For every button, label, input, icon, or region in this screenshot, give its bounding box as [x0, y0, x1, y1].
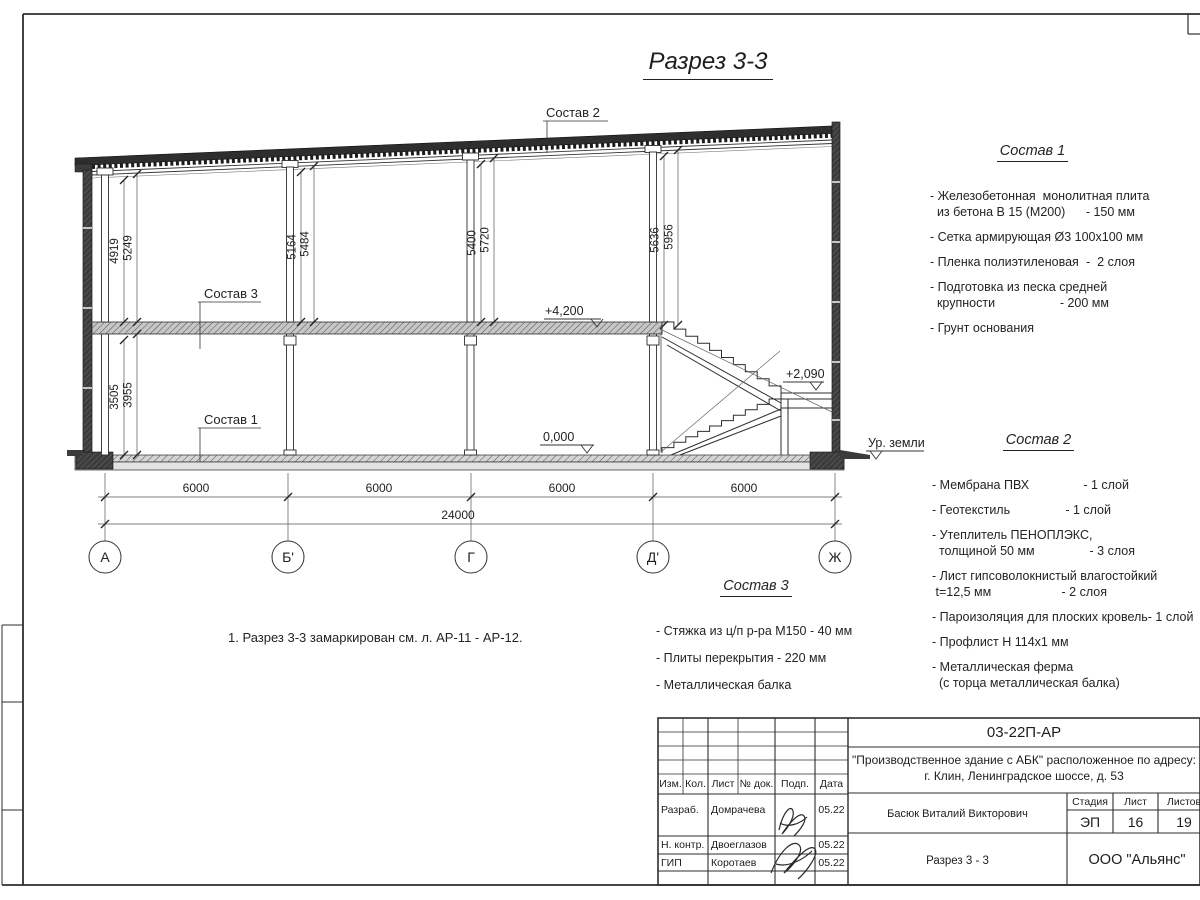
comp-line: - Подготовка из песка средней	[930, 279, 1135, 295]
comp-line: из бетона В 15 (М200)- 150 мм	[930, 204, 1135, 220]
comp-line: - Плиты перекрытия - 220 мм	[656, 650, 856, 666]
comp-line: - Сетка армирующая Ø3 100x100 мм	[930, 229, 1135, 245]
chief-name: Басюк Виталий Викторович	[848, 805, 1067, 823]
plinth-right	[840, 450, 870, 459]
horizontal-dimensions: 6000 6000 6000 6000 24000	[98, 473, 842, 541]
dim-5636: 5636	[650, 227, 662, 253]
row-role: Н. контр.	[661, 838, 707, 852]
signature-1	[779, 808, 807, 836]
dim-3955: 3955	[123, 382, 135, 408]
comp-line: - Геотекстиль- 1 слой	[932, 502, 1145, 518]
left-wall	[83, 170, 92, 455]
comp-line: - Железобетонная монолитная плита	[930, 188, 1135, 204]
comp-line: - Металлическая ферма	[932, 659, 1145, 675]
comp-line-value: - 150 мм	[1086, 204, 1135, 220]
comp-line-text: крупности	[930, 295, 995, 311]
axis-a: А	[100, 549, 110, 565]
span-dim-2: 6000	[366, 481, 393, 495]
axis-bubbles: А Б' Г Д' Ж	[89, 541, 851, 573]
stage-label: Стадия	[1067, 795, 1113, 809]
row-date: 05.22	[816, 856, 847, 870]
dim-5249: 5249	[123, 235, 135, 261]
comp-line-value: - 1 слой	[1148, 609, 1194, 625]
span-dim-1: 6000	[183, 481, 210, 495]
row-date: 05.22	[816, 803, 847, 817]
drawing-note: 1. Разрез 3-3 замаркирован см. л. АР-11 …	[228, 630, 523, 645]
sheet-value: 16	[1113, 812, 1158, 832]
comp-line: (с торца металлическая балка)	[932, 675, 1145, 691]
comp-line-text: толщиной 50 мм	[932, 543, 1035, 559]
axis-b: Б'	[282, 549, 294, 565]
elevation-landing: +2,090	[786, 367, 825, 381]
col-ndok: № док.	[738, 776, 775, 792]
walls	[83, 122, 840, 455]
col-data: Дата	[815, 776, 848, 792]
comp-line-text: - Утеплитель ПЕНОПЛЭКС,	[932, 527, 1092, 543]
sheets-value: 19	[1158, 812, 1200, 832]
composition-2-title: Состав 2	[932, 432, 1145, 451]
signatures	[771, 808, 816, 879]
comp-line-text: - Пароизоляция для плоских кровель	[932, 609, 1148, 625]
comp-line-text: t=12,5 мм	[932, 584, 991, 600]
comp-line: - Утеплитель ПЕНОПЛЭКС,	[932, 527, 1145, 543]
comp-line-value: - 200 мм	[1060, 295, 1109, 311]
composition-3-title-text: Состав 3	[720, 578, 791, 597]
comp-line-text: - Железобетонная монолитная плита	[930, 188, 1149, 204]
comp-line: - Пленка полиэтиленовая- 2 слоя	[930, 254, 1135, 270]
col-list: Лист	[708, 776, 738, 792]
row-name: Домрачева	[711, 803, 773, 817]
span-dim-4: 6000	[731, 481, 758, 495]
axis-zh: Ж	[829, 549, 842, 565]
comp-line-text: - Подготовка из песка средней	[930, 279, 1107, 295]
stair-railing-far	[661, 351, 780, 452]
comp-line: - Стяжка из ц/п р-ра М150 - 40 мм	[656, 623, 856, 639]
row-name: Коротаев	[711, 856, 773, 870]
comp-line-text: - Профлист Н 114x1 мм	[932, 634, 1069, 650]
comp-line-text: (с торца металлическая балка)	[932, 675, 1120, 691]
foundation-right	[810, 452, 844, 469]
comp-line: - Металлическая балка	[656, 677, 856, 693]
col-podp: Подп.	[775, 776, 815, 792]
company-name: ООО "Альянс"	[1067, 846, 1200, 874]
comp-line: - Лист гипсоволокнистый влагостойкий	[932, 568, 1145, 584]
comp-line-text: - Мембрана ПВХ	[932, 477, 1029, 493]
sheets-label: Листов	[1158, 795, 1200, 809]
label-sostav1: Состав 1	[204, 412, 258, 427]
stairs	[660, 322, 832, 455]
col-kol: Кол.	[683, 776, 708, 792]
dim-4919: 4919	[109, 238, 121, 264]
comp-line-text: из бетона В 15 (М200)	[930, 204, 1065, 220]
dim-5400: 5400	[467, 230, 479, 256]
drawing-title: Разрез 3 - 3	[848, 848, 1067, 874]
landing	[781, 393, 832, 399]
comp-line-text: - Грунт основания	[930, 320, 1034, 336]
comp-line-text: - Сетка армирующая Ø3 100x100 мм	[930, 229, 1143, 245]
project-name-line1: "Производственное здание с АБК" располож…	[848, 752, 1200, 767]
lower-flight-steps	[662, 399, 781, 453]
comp-line: толщиной 50 мм- 3 слоя	[932, 543, 1145, 559]
row-role: ГИП	[661, 856, 707, 870]
col-izm: Изм.	[658, 776, 683, 792]
comp-line-value: - 1 слой	[1083, 477, 1129, 493]
floor-slab	[92, 322, 662, 334]
comp-line-text: - Геотекстиль	[932, 502, 1010, 518]
dim-3505: 3505	[109, 384, 121, 410]
columns	[97, 146, 661, 456]
composition-2-title-text: Состав 2	[1003, 432, 1074, 451]
page-title-text: Разрез 3-3	[643, 48, 774, 80]
comp-line-text: - Металлическая балка	[656, 677, 791, 693]
elevation-ground: 0,000	[543, 430, 574, 444]
comp-line: - Грунт основания	[930, 320, 1135, 336]
span-dim-3: 6000	[549, 481, 576, 495]
stage-value: ЭП	[1067, 812, 1113, 832]
comp-line-text: - Лист гипсоволокнистый влагостойкий	[932, 568, 1157, 584]
page-title: Разрез 3-3	[608, 48, 808, 80]
comp-line-value: - 3 слоя	[1090, 543, 1135, 559]
comp-line-value: - 2 слоя	[1086, 254, 1135, 270]
label-sostav2: Состав 2	[546, 105, 600, 120]
comp-line-value: - 1 слой	[1065, 502, 1111, 518]
comp-line: - Профлист Н 114x1 мм	[932, 634, 1145, 650]
composition-2: Состав 2 - Мембрана ПВХ- 1 слой - Геотек…	[932, 432, 1145, 691]
composition-1-title-text: Состав 1	[997, 143, 1068, 162]
comp-line-text: - Стяжка из ц/п р-ра М150 - 40 мм	[656, 623, 852, 639]
upper-flight-steps	[662, 322, 781, 393]
signature-2	[771, 843, 816, 879]
left-edge-boxes	[2, 625, 23, 885]
sheet-label: Лист	[1113, 795, 1158, 809]
dim-5484: 5484	[300, 231, 312, 257]
project-name-line2: г. Клин, Ленинградское шоссе, д. 53	[848, 768, 1200, 783]
right-wall	[832, 122, 840, 455]
comp-line: - Мембрана ПВХ- 1 слой	[932, 477, 1145, 493]
composition-3: Состав 3 - Стяжка из ц/п р-ра М150 - 40 …	[656, 578, 856, 693]
dim-5164: 5164	[287, 234, 299, 260]
composition-1: Состав 1 - Железобетонная монолитная пли…	[930, 143, 1135, 336]
ground-level-label: Ур. земли	[868, 436, 925, 450]
vertical-dimensions: 4919 5249 5164 5484 5400 5720 5636 5956 …	[109, 146, 682, 459]
dim-5720: 5720	[480, 227, 492, 253]
axis-d: Д'	[647, 549, 659, 565]
comp-line-text: - Пленка полиэтиленовая	[930, 254, 1079, 270]
row-date: 05.22	[816, 838, 847, 852]
row-role: Разраб.	[661, 803, 707, 817]
composition-1-title: Состав 1	[930, 143, 1135, 162]
plinth-left	[67, 450, 83, 456]
sheet: { "page": { "title": "Разрез 3-3", "note…	[0, 0, 1200, 900]
dim-5956: 5956	[664, 224, 676, 250]
comp-line-text: - Плиты перекрытия - 220 мм	[656, 650, 826, 666]
total-dim: 24000	[441, 508, 475, 522]
label-sostav3: Состав 3	[204, 286, 258, 301]
comp-line: крупности- 200 мм	[930, 295, 1135, 311]
roof	[75, 126, 832, 178]
elevation-floor2: +4,200	[545, 304, 584, 318]
comp-line-text: - Металлическая ферма	[932, 659, 1073, 675]
doc-code: 03-22П-АР	[848, 720, 1200, 745]
comp-line: t=12,5 мм- 2 слоя	[932, 584, 1145, 600]
comp-line: - Пароизоляция для плоских кровель- 1 сл…	[932, 609, 1145, 625]
comp-line-value: - 2 слоя	[1062, 584, 1107, 600]
composition-3-title: Состав 3	[656, 578, 856, 597]
axis-g: Г	[467, 549, 475, 565]
row-name: Двоеглазов	[711, 838, 773, 852]
